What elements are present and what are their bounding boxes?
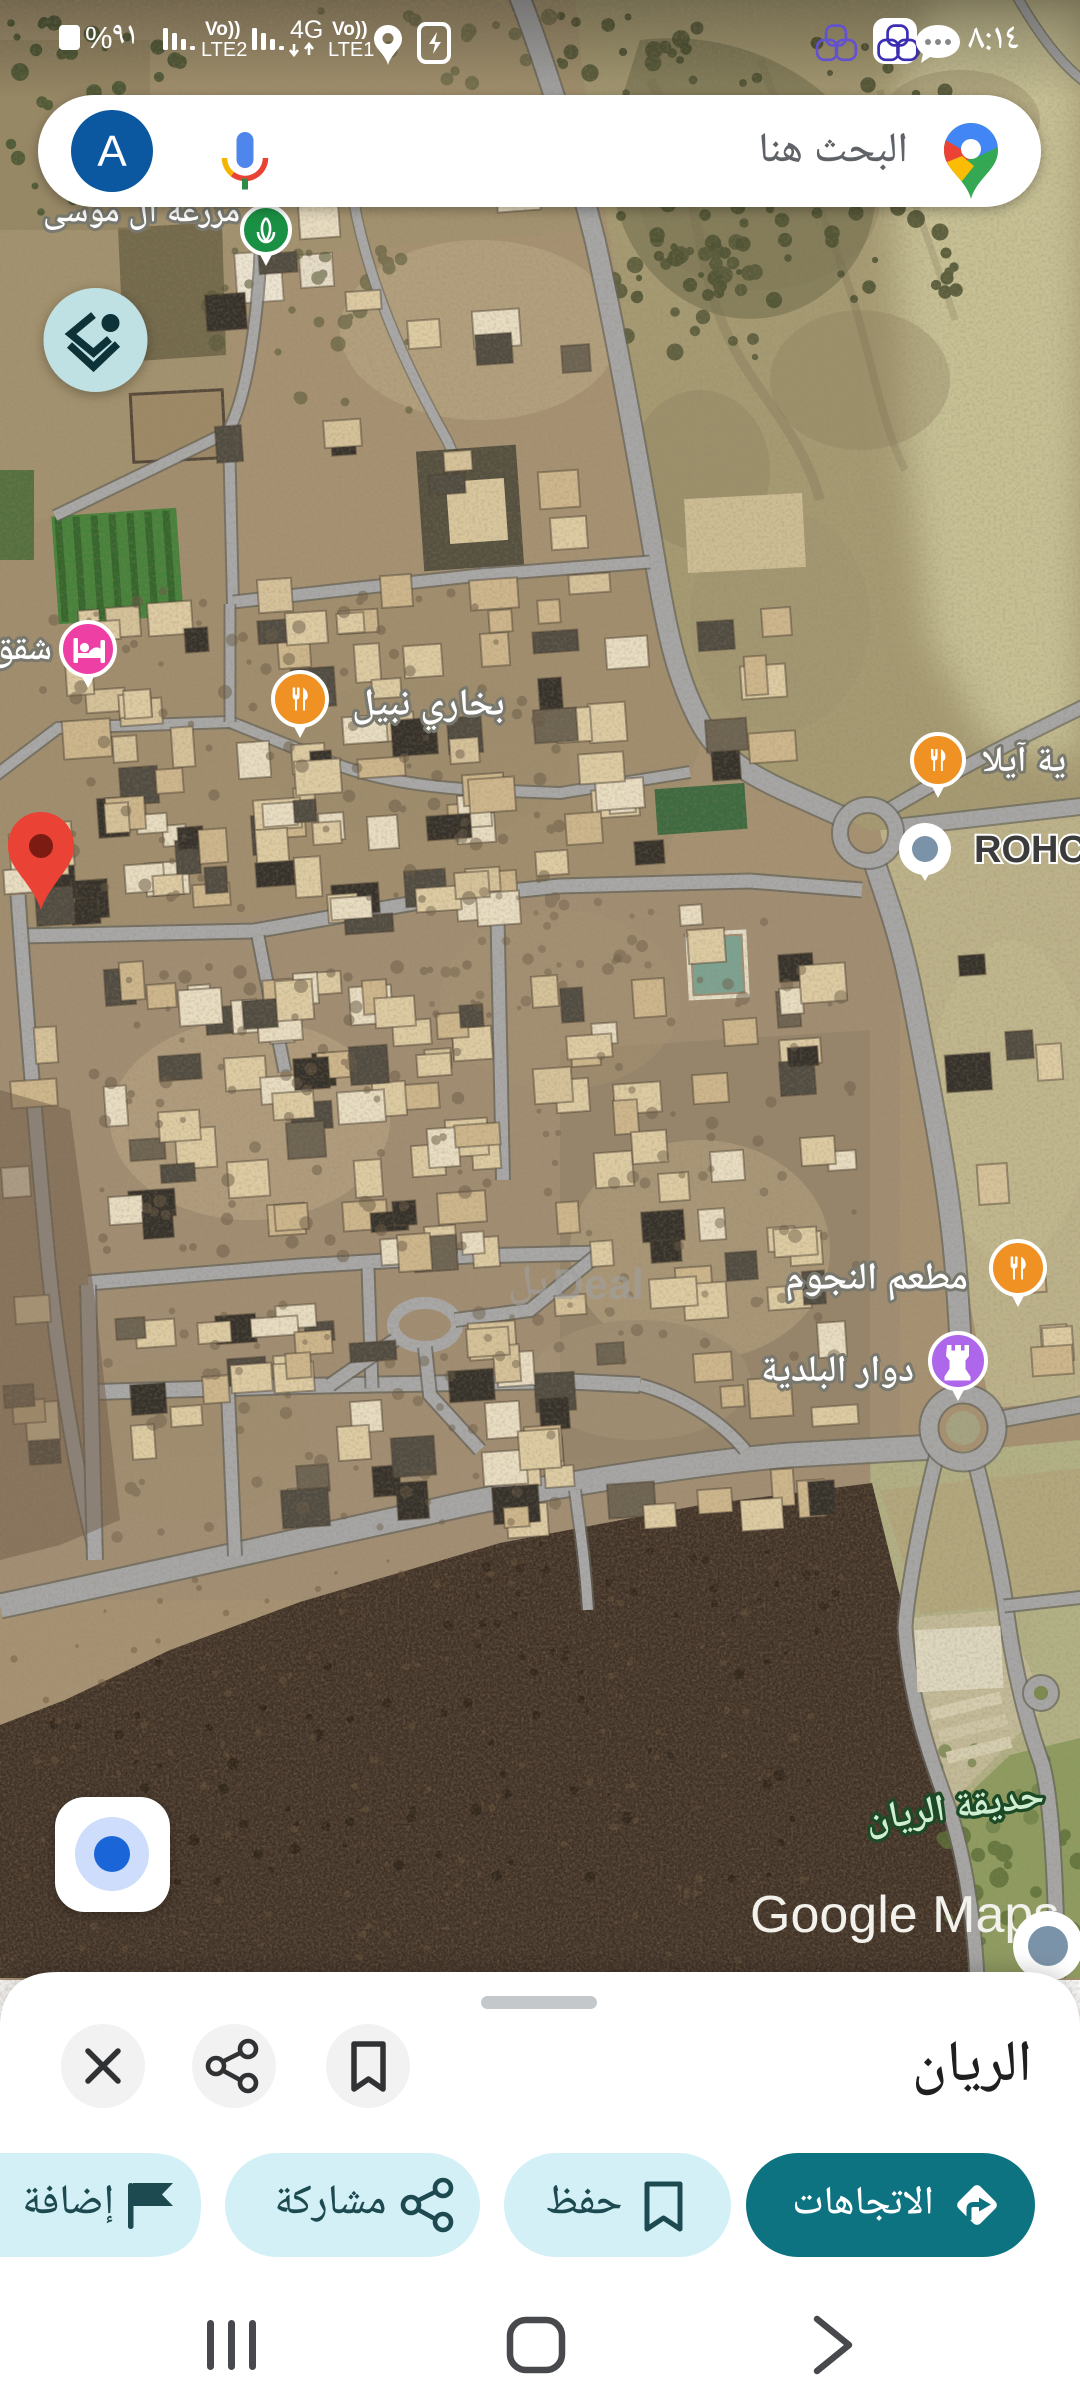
svg-text:Google Maps: Google Maps <box>750 1886 1059 1944</box>
svg-text:A: A <box>97 127 127 176</box>
svg-text:Vo)): Vo)) <box>332 19 368 40</box>
svg-text:Deal: Deal <box>553 1261 644 1309</box>
svg-text:ROHC: ROHC <box>974 829 1080 871</box>
svg-text:LTE2: LTE2 <box>201 39 247 61</box>
svg-text:%: % <box>85 20 113 55</box>
svg-text:LTE1: LTE1 <box>328 39 374 61</box>
svg-text:Vo)): Vo)) <box>205 19 241 40</box>
svg-text:4G: 4G <box>290 16 323 44</box>
